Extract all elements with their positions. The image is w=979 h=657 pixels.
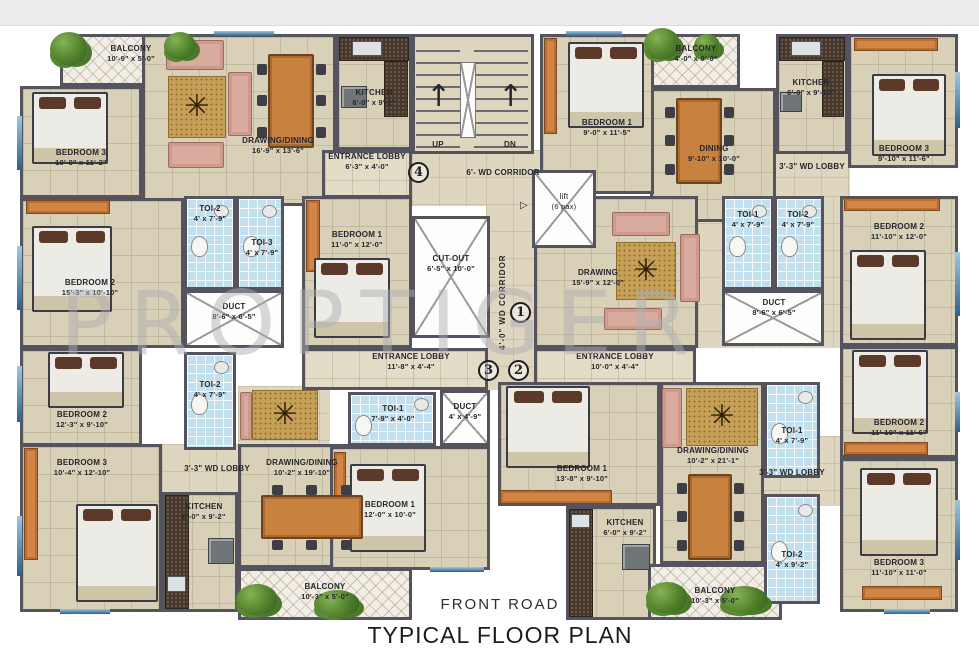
fan-icon: ✳ bbox=[272, 400, 297, 430]
room-label: TOI-14' x 7'-9" bbox=[722, 210, 774, 230]
chairs bbox=[733, 474, 744, 560]
room-label: BEDROOM 212'-3" x 9'-10" bbox=[26, 410, 138, 430]
bed bbox=[48, 352, 124, 408]
window bbox=[566, 31, 622, 36]
room-label: 3'-3" WD LOBBY bbox=[736, 468, 848, 478]
chairs bbox=[676, 474, 687, 560]
lift-door-icon: ▷ bbox=[520, 200, 528, 211]
carpet: ✳ bbox=[168, 76, 226, 138]
sofa bbox=[168, 142, 224, 168]
stair-landing bbox=[460, 62, 476, 138]
bed bbox=[850, 250, 926, 340]
chairs bbox=[256, 54, 267, 148]
window bbox=[17, 366, 22, 422]
bed bbox=[568, 42, 644, 128]
room-toilet2-bottomleft bbox=[184, 352, 236, 450]
window bbox=[955, 392, 960, 432]
bed bbox=[76, 504, 158, 602]
unit-number-2: 2 bbox=[508, 360, 529, 381]
fan-icon: ✳ bbox=[709, 402, 734, 432]
room-label: DUCT8'-6" x 6'-5" bbox=[188, 302, 280, 322]
room-label: DINING9'-10" x 10'-0" bbox=[668, 144, 760, 164]
desk bbox=[500, 490, 612, 504]
room-label: KITCHEN6'-0" x 9'-2" bbox=[172, 502, 236, 522]
window bbox=[17, 116, 22, 170]
sink bbox=[352, 41, 382, 56]
room-label: KITCHEN6'-0" x 9'-2" bbox=[330, 88, 418, 108]
window bbox=[17, 246, 22, 310]
window bbox=[955, 72, 960, 128]
room-label: TOI-24' x 7'-9" bbox=[182, 204, 238, 224]
room-label: BEDROOM 112'-0" x 10'-0" bbox=[336, 500, 444, 520]
room-label: DRAWING/DINING10'-2" x 21'-1" bbox=[664, 446, 762, 466]
chairs bbox=[723, 98, 734, 184]
bed bbox=[314, 258, 390, 338]
lift-label: lift(6 pax) bbox=[536, 192, 592, 212]
dining-table bbox=[676, 474, 744, 560]
room-label: DUCT4' x 4'-9" bbox=[436, 402, 494, 422]
wardrobe bbox=[854, 38, 938, 51]
unit-number-3: 3 bbox=[478, 360, 499, 381]
room-label: BEDROOM 111'-0" x 12'-0" bbox=[306, 230, 408, 250]
room-label: DRAWING/DINING10'-2" x 19'-10" bbox=[242, 458, 362, 478]
bed bbox=[32, 226, 112, 312]
room-label: TOI-34' x 7'-9" bbox=[236, 238, 288, 258]
down-arrow-icon: ↑ bbox=[498, 82, 523, 112]
window bbox=[60, 609, 110, 614]
room-label: DUCT8'-6" x 6'-5" bbox=[726, 298, 822, 318]
floor-plan: ✳ ✳ ✳ ✳ ↑ ↑ bbox=[0, 0, 979, 657]
sofa bbox=[680, 234, 700, 302]
top-margin-band bbox=[0, 0, 979, 26]
room-label: TOI-14' x 7'-9" bbox=[766, 426, 818, 446]
dining-table bbox=[664, 98, 734, 184]
room-label: KITCHEN6'-0" x 9'-2" bbox=[594, 518, 656, 538]
unit-number-1: 1 bbox=[510, 302, 531, 323]
page-title: TYPICAL FLOOR PLAN bbox=[310, 622, 690, 649]
sofa bbox=[612, 212, 670, 236]
room-label: BALCONY10'-3" x 5'-0" bbox=[656, 586, 774, 606]
room-label: BEDROOM 211'-10" x 11'-6" bbox=[846, 418, 952, 438]
chairs bbox=[260, 539, 364, 550]
front-road-label: FRONT ROAD bbox=[380, 596, 620, 613]
stairs-up-label: UP bbox=[420, 140, 456, 150]
room-label: BEDROOM 19'-0" x 11'-5" bbox=[556, 118, 658, 138]
bed bbox=[860, 468, 938, 556]
room-label: CUT-OUT6'-5" x 10'-0" bbox=[416, 254, 486, 274]
room-label: ENTRANCE LOBBY10'-0" x 4'-4" bbox=[556, 352, 674, 372]
room-label: BEDROOM 311'-10" x 11'-0" bbox=[846, 558, 952, 578]
wardrobe bbox=[26, 200, 110, 214]
stairs-dn-label: DN bbox=[492, 140, 528, 150]
fan-icon: ✳ bbox=[184, 92, 209, 122]
room-label: BEDROOM 310'-0" x 11'-2" bbox=[24, 148, 138, 168]
desk bbox=[844, 442, 928, 455]
room-label: TOI-17'-9" x 4'-0" bbox=[356, 404, 430, 424]
window bbox=[17, 516, 22, 576]
room-label: BEDROOM 113'-8" x 9'-10" bbox=[524, 464, 640, 484]
room-label: BEDROOM 215'-3" x 10'-10" bbox=[30, 278, 150, 298]
room-label: ENTRANCE LOBBY6'-3" x 4'-0" bbox=[326, 152, 408, 172]
bed bbox=[506, 386, 590, 468]
cutout-shaft bbox=[412, 216, 490, 338]
room-label: ENTRANCE LOBBY11'-8" x 4'-4" bbox=[356, 352, 466, 372]
room-label: BALCONY4'-0" x 9'-0" bbox=[654, 44, 738, 64]
carpet: ✳ bbox=[252, 390, 318, 440]
window bbox=[955, 252, 960, 316]
room-label: TOI-24' x 9'-2" bbox=[766, 550, 818, 570]
room-label: 3'-3" WD LOBBY bbox=[756, 162, 868, 172]
up-arrow-icon: ↑ bbox=[426, 82, 451, 112]
chairs bbox=[664, 98, 675, 184]
desk bbox=[844, 198, 940, 211]
chairs bbox=[315, 54, 326, 148]
carpet: ✳ bbox=[686, 388, 758, 446]
sink bbox=[791, 41, 821, 56]
room-label: BALCONY10'-3" x 5'-0" bbox=[262, 582, 388, 602]
fridge bbox=[208, 538, 234, 564]
room-label: BEDROOM 211'-10" x 12'-0" bbox=[846, 222, 952, 242]
unit-number-4: 4 bbox=[408, 162, 429, 183]
wardrobe bbox=[862, 586, 942, 600]
room-label: KITCHEN6'-0" x 9'-10" bbox=[768, 78, 854, 98]
sofa bbox=[604, 308, 662, 330]
window bbox=[884, 609, 930, 614]
sink bbox=[571, 514, 590, 528]
room-label: TOI-24' x 7'-9" bbox=[184, 380, 236, 400]
room-label: BEDROOM 310'-4" x 12'-10" bbox=[24, 458, 140, 478]
room-label: DRAWING/DINING16'-9" x 13'-6" bbox=[222, 136, 334, 156]
sink bbox=[167, 576, 186, 592]
dining-table bbox=[256, 54, 326, 148]
corridor-vertical-label: 4'-0" WD CORRIDOR bbox=[498, 210, 514, 350]
corridor-label: 6'- WD CORRIDOR bbox=[428, 168, 578, 178]
room-label: BALCONY10'-9" x 5'-0" bbox=[76, 44, 186, 64]
sofa bbox=[240, 392, 252, 440]
room-label: DRAWING15'-9" x 12'-0" bbox=[546, 268, 650, 288]
window bbox=[430, 567, 484, 572]
sofa bbox=[662, 388, 682, 448]
sofa bbox=[228, 72, 252, 136]
window bbox=[214, 31, 274, 36]
fridge bbox=[622, 544, 650, 570]
room-label: TOI-24' x 7'-9" bbox=[772, 210, 824, 230]
window bbox=[955, 500, 960, 560]
chairs bbox=[260, 484, 364, 495]
